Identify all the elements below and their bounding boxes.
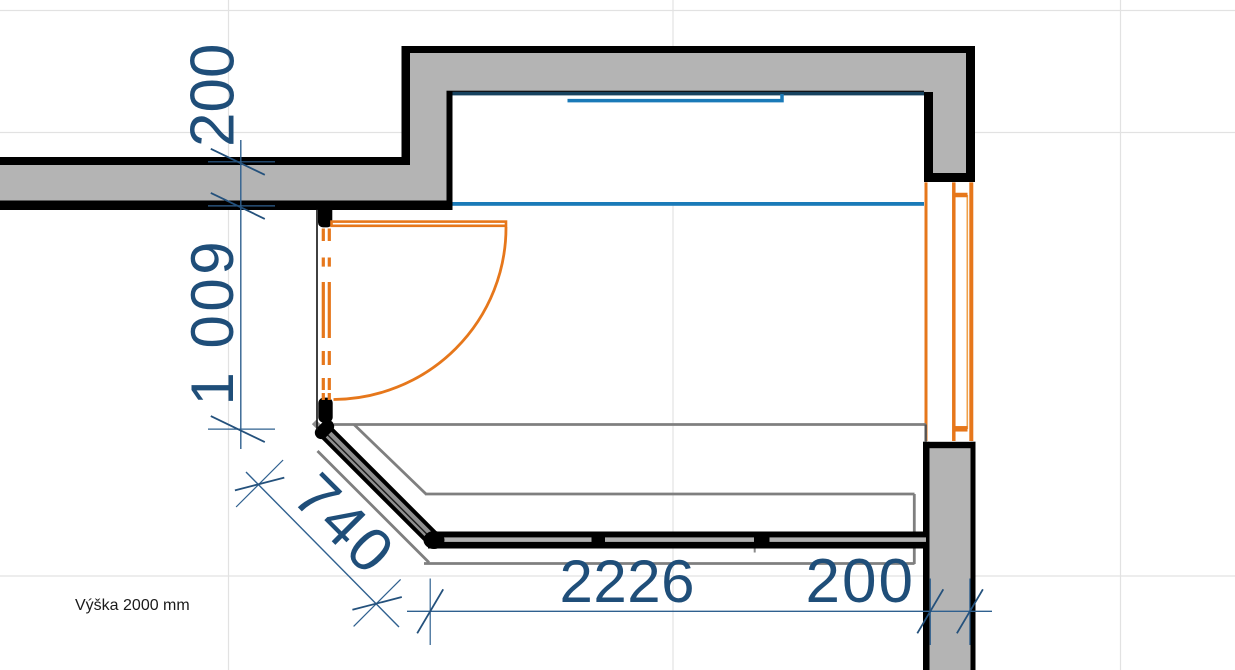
svg-text:200: 200 <box>179 44 248 147</box>
svg-text:200: 200 <box>806 547 915 616</box>
svg-text:1 009: 1 009 <box>179 238 246 406</box>
svg-text:Výška 2000 mm: Výška 2000 mm <box>75 597 190 614</box>
svg-text:2226: 2226 <box>560 548 695 615</box>
